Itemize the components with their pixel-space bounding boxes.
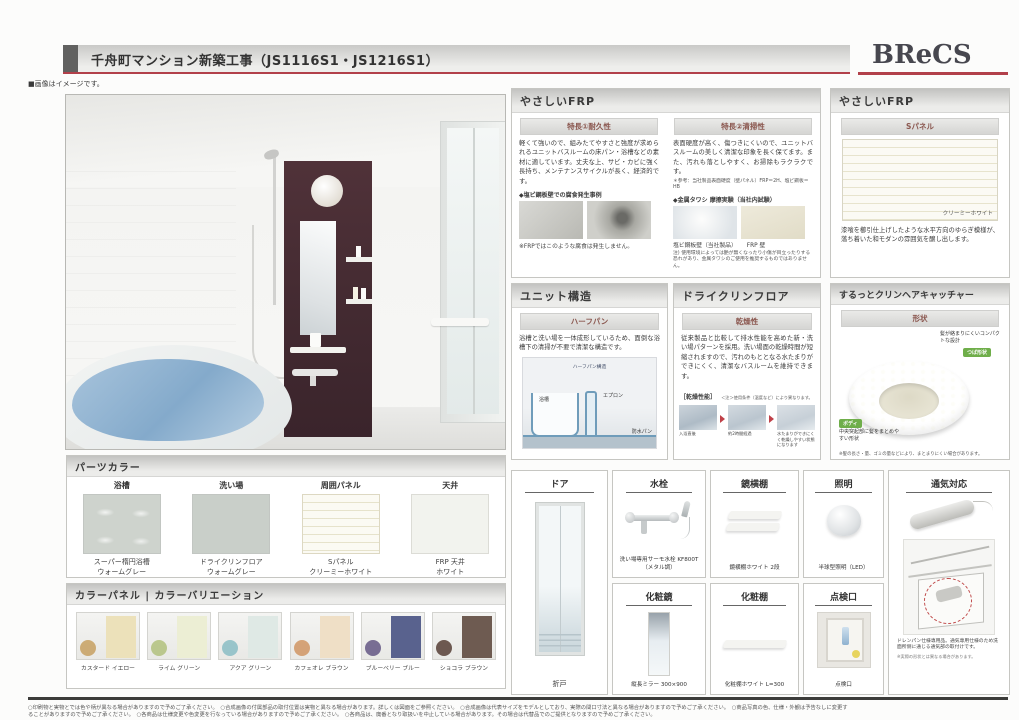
panel-unit-title-bar: ユニット構造 <box>512 284 667 308</box>
panel-unit: ユニット構造 ハーフパン 浴槽と洗い場を一体成形しているため、面倒な浴槽下の清掃… <box>511 283 668 460</box>
hair-subtitle: 形状 <box>841 310 1000 327</box>
color-variation-label: ブルーベリー ブルー <box>360 663 426 672</box>
halfpan-diagram-title: ハーフパン構造 <box>523 363 656 370</box>
s-panel-body: 漆喰を櫛引仕上げしたような水平方向のゆらぎ模様が、落ち着いた和モダンの雰囲気を醸… <box>831 224 1009 247</box>
parts-color-item: 洗い場 ドライクリンフロア ウォームグレー <box>183 480 279 577</box>
parts-color-section: パーツカラー 浴槽 スーパー楕円浴槽 ウォームグレー 洗い場 ドライクリンフロア… <box>66 455 506 578</box>
faucet-figure <box>613 493 705 545</box>
scrub-note: 注) 使用環境によっては艶が無くなったり小傷が目立ったりする恐れがあり、金属タワ… <box>666 250 820 271</box>
swatch-photo-blob <box>151 640 167 656</box>
parts-color-caption2: ホワイト <box>402 567 498 577</box>
panel-hair-catcher: するっとクリンヘアキャッチャー 形状 髪が絡まりにくいコンパクトな設計 つば形状… <box>830 283 1010 460</box>
swatch-color-panel <box>106 616 136 658</box>
hand-shower-hose <box>679 517 690 539</box>
diagram-red-dashed-circle <box>924 578 972 624</box>
dry-step-photo-2 <box>728 405 766 430</box>
parts-color-title-bar: パーツカラー <box>67 456 505 477</box>
frp-hardness-reference: ＊参考：当社製品表面硬度（壁パネル）FRP＝2H、塩ビ鋼板＝HB <box>666 177 820 192</box>
product-door-caption: 折戸 <box>512 680 607 689</box>
label-apron: エプロン <box>603 392 623 399</box>
parts-color-item: 天井 FRP 天井 ホワイト <box>402 480 498 577</box>
diagram-line-1 <box>911 546 990 564</box>
dry-step-photo-3 <box>777 405 815 430</box>
swatch-photo-blob <box>222 640 238 656</box>
faucet-spout <box>310 376 316 386</box>
panel-frp-title-bar: やさしいFRP <box>512 89 820 113</box>
panel-frp-s-title-bar: やさしいFRP <box>831 89 1009 113</box>
halfpan-diagram: ハーフパン構造 浴槽 エプロン 防水パン <box>522 357 657 449</box>
swatch-color-panel <box>462 616 492 658</box>
product-light-caption: 半球型照明（LED） <box>804 565 883 572</box>
product-mirror-shelf-title: 鏡横棚 <box>711 471 798 490</box>
shower-hose <box>252 225 288 379</box>
product-vanity-shelf-title: 化粧棚 <box>711 584 798 603</box>
image-disclaimer: ■画像はイメージです。 <box>28 79 104 89</box>
header-square <box>63 45 78 72</box>
frp-scrub-heading: ◆金属タワシ 摩擦実験（当社内試験） <box>666 192 820 206</box>
dry-step-caption-1: 入浴直後 <box>679 431 717 436</box>
hair-catcher-center <box>879 383 939 419</box>
product-faucet-title: 水栓 <box>613 471 705 490</box>
swatch-photo-blob <box>365 640 381 656</box>
page-title: 千舟町マンション新築工事（JS1116S1・JS1216S1） <box>91 50 439 69</box>
product-mirror-shelf-caption: 鏡横棚ホワイト 2段 <box>711 565 798 572</box>
accent-wall-panel <box>284 161 372 437</box>
tall-mirror <box>300 221 336 335</box>
color-variation-swatch <box>218 612 282 660</box>
frp-cleanability-column: 特長②清掃性 表面硬度が高く、傷つきにくいので、ユニットバスルームの美しく清潔な… <box>666 113 820 271</box>
dry-perf-label: ［乾燥性能］ <box>680 394 716 401</box>
product-vanity-shelf: 化粧棚 化粧棚ホワイト L=300 <box>710 583 799 695</box>
color-variation-item: ブルーベリー ブルー <box>360 612 426 672</box>
vent-pipe <box>908 498 976 531</box>
arrow-right-icon <box>769 415 774 423</box>
product-faucet: 水栓 洗い場専用サーモ水栓 KF800T（メタル調） <box>612 470 706 578</box>
unit-body: 浴槽と洗い場を一体成形しているため、面倒な浴槽下の清掃が不要で清潔な構造です。 <box>512 334 667 353</box>
title-underline <box>626 605 692 606</box>
parts-color-caption1: ドライクリンフロア <box>183 557 279 567</box>
color-variation-section: カラーパネル | カラーバリエーション カスタード イエロー ライム グリーン <box>66 583 506 689</box>
shelf-tier-1 <box>728 511 783 519</box>
dry-subtitle: 乾燥性 <box>682 313 812 330</box>
product-vent: 通気対応 ドレンパン仕様専用品。通気専用仕様のため洗面所側に通じる通気部の取付け… <box>888 470 1010 695</box>
hair-badge-bottom: ボディ <box>839 419 862 428</box>
faucet-knob-right <box>669 512 679 523</box>
hatch-figure <box>817 612 871 668</box>
door-figure <box>536 503 584 655</box>
vent-diagram <box>903 539 995 635</box>
product-hatch-caption: 点検口 <box>804 682 883 689</box>
hand-shower <box>681 501 691 518</box>
door-bottom-slats <box>539 630 581 648</box>
parts-color-caption2: ウォームグレー <box>183 567 279 577</box>
color-variation-item: カスタード イエロー <box>75 612 141 672</box>
corner-shelf-1 <box>346 257 372 262</box>
color-variation-swatch <box>147 612 211 660</box>
product-light-title: 照明 <box>804 471 883 490</box>
door-divider <box>473 128 475 414</box>
dry-performance-steps: 入浴直後 約2時間経過 水たまりができにくく乾燥しやすい状態になります <box>674 405 820 447</box>
product-vanity-mirror-title: 化粧鏡 <box>613 584 705 603</box>
product-vanity-mirror-caption: 縦長ミラー 300×900 <box>613 682 705 689</box>
brand-underline <box>858 72 1008 75</box>
bottle-1 <box>356 246 361 257</box>
brand-logo: BReCS <box>872 40 972 70</box>
color-variation-label: ショコラ ブラウン <box>431 663 497 672</box>
parts-color-swatch-bathtub <box>83 494 161 554</box>
scrub-caption-right: FRP 壁 <box>747 240 766 249</box>
title-underline <box>525 492 593 493</box>
s-panel-swatch-label: クリーミーホワイト <box>943 209 993 217</box>
color-variation-label: アクア グリーン <box>217 663 283 672</box>
dry-step-caption-3: 水たまりができにくく乾燥しやすい状態になります <box>777 431 815 447</box>
faucet-knob-left <box>625 512 635 523</box>
parts-color-swatch-floor <box>192 494 270 554</box>
parts-color-item: 浴槽 スーパー楕円浴槽 ウォームグレー <box>74 480 170 577</box>
bathroom-door <box>440 121 506 423</box>
footer-rule <box>28 697 1008 700</box>
panel-frp-s-title: やさしいFRP <box>839 95 914 108</box>
panel-hair-title-bar: するっとクリンヘアキャッチャー <box>831 284 1009 305</box>
hair-catcher-figure: 髪が絡まりにくいコンパクトな設計 つば形状 ボディ 中央突起部に髪をまとめやすい… <box>831 331 1009 449</box>
corrosion-photo-1 <box>519 201 583 239</box>
corrosion-photo-2 <box>587 201 651 239</box>
header-bar: 千舟町マンション新築工事（JS1116S1・JS1216S1） <box>63 45 850 72</box>
color-variation-swatch <box>290 612 354 660</box>
frp-durability-heading: 特長①耐久性 <box>520 118 658 135</box>
panel-frp-title: やさしいFRP <box>520 95 595 108</box>
bottle-3 <box>361 288 366 299</box>
parts-color-label: 洗い場 <box>183 480 279 491</box>
panel-dry-title-bar: ドライクリンフロア <box>674 284 820 308</box>
label-bathtub: 浴槽 <box>539 396 549 403</box>
bath-water <box>72 359 264 441</box>
frp-durability-column: 特長①耐久性 軽くて強いので、組みたてやすさと強度が求められるユニットバスルーム… <box>512 113 666 271</box>
product-door: ドア 折戸 <box>511 470 608 695</box>
scrub-photo-frp <box>741 206 805 239</box>
hair-label-bottom: 中央突起部に髪をまとめやすい形状 <box>839 429 903 442</box>
round-light <box>311 175 343 207</box>
parts-color-label: 天井 <box>402 480 498 491</box>
dry-step-2: 約2時間経過 <box>728 405 766 436</box>
color-variation-swatch <box>361 612 425 660</box>
scrub-photo-steel <box>673 206 737 239</box>
faucet-spout <box>641 521 647 534</box>
swatch-color-panel <box>248 616 278 658</box>
title-underline <box>723 605 786 606</box>
product-spec-sheet: 千舟町マンション新築工事（JS1116S1・JS1216S1） BReCS ■画… <box>0 0 1019 720</box>
color-variation-item: カフェオレ ブラウン <box>289 612 355 672</box>
product-door-title: ドア <box>512 471 607 490</box>
parts-color-label: 浴槽 <box>74 480 170 491</box>
hatch-yellow-dot <box>852 650 860 658</box>
parts-color-caption2: クリーミーホワイト <box>293 567 389 577</box>
product-vent-caption: ドレンパン仕様専用品。通気専用仕様のため洗面所側に通じる通気部の取付けです。 <box>889 635 1009 652</box>
color-variation-swatch <box>432 612 496 660</box>
color-variation-item: ショコラ ブラウン <box>431 612 497 672</box>
color-variation-label: カスタード イエロー <box>75 663 141 672</box>
panel-dry: ドライクリンフロア 乾燥性 従来製品と比較して排水性能を高めた新・洗い場パターン… <box>673 283 821 460</box>
vent-cord <box>973 501 993 512</box>
unit-subtitle: ハーフパン <box>520 313 658 330</box>
product-mirror-shelf: 鏡横棚 鏡横棚ホワイト 2段 <box>710 470 799 578</box>
color-variation-title-bar: カラーパネル | カラーバリエーション <box>67 584 505 605</box>
product-hatch-title: 点検口 <box>804 584 883 603</box>
cup <box>310 333 321 347</box>
counter-shelf <box>290 347 346 353</box>
parts-color-label: 周囲パネル <box>293 480 389 491</box>
product-vent-note: ※実際の形状とは異なる場合があります。 <box>889 652 1009 660</box>
dry-step-caption-2: 約2時間経過 <box>728 431 766 436</box>
hair-label-top: 髪が絡まりにくいコンパクトな設計 <box>940 331 1004 344</box>
parts-color-caption1: Sパネル <box>293 557 389 567</box>
shelf-tier-2 <box>726 523 781 531</box>
light-figure <box>827 505 861 536</box>
color-variation-swatch <box>76 612 140 660</box>
frp-corrosion-caption: ※FRPではこのような腐食は発生しません。 <box>512 239 666 252</box>
color-variation-item: アクア グリーン <box>217 612 283 672</box>
vanity-shelf-figure <box>722 640 787 648</box>
panel-frp: やさしいFRP 特長①耐久性 軽くて強いので、組みたてやすさと強度が求められるユ… <box>511 88 821 278</box>
product-hatch: 点検口 点検口 <box>803 583 884 695</box>
dry-body: 従来製品と比較して排水性能を高めた新・洗い場パターンを採用。洗い場面の乾燥時間が… <box>674 334 820 381</box>
mirror-shelf-figure <box>711 493 798 545</box>
product-vanity-mirror: 化粧鏡 縦長ミラー 300×900 <box>612 583 706 695</box>
frp-cleanability-heading: 特長②清掃性 <box>674 118 812 135</box>
product-light: 照明 半球型照明（LED） <box>803 470 884 578</box>
bathroom-photo <box>65 94 506 450</box>
corner-shelf-2 <box>346 299 372 304</box>
color-variation-title: カラーパネル | カラーバリエーション <box>75 591 264 602</box>
panel-unit-title: ユニット構造 <box>520 290 592 303</box>
frp-cleanability-body: 表面硬度が高く、傷つきにくいので、ユニットバスルームの美しく清潔な印象を長く保て… <box>666 139 820 177</box>
hair-badge-top: つば形状 <box>963 348 991 357</box>
title-underline <box>815 492 872 493</box>
dry-perf-note: ＜注＞使用条件（温度など）により異なります。 <box>721 395 813 400</box>
dry-step-1: 入浴直後 <box>679 405 717 436</box>
parts-color-swatch-panel <box>302 494 380 554</box>
apron-shape <box>585 391 597 437</box>
towel-bar <box>431 318 489 326</box>
swatch-photo-blob <box>436 640 452 656</box>
parts-color-item: 周囲パネル Sパネル クリーミーホワイト <box>293 480 389 577</box>
vent-item-figure <box>889 493 1009 537</box>
color-variation-label: カフェオレ ブラウン <box>289 663 355 672</box>
arrow-right-icon <box>720 415 725 423</box>
vanity-mirror-figure <box>648 612 670 676</box>
color-variation-label: ライム グリーン <box>146 663 212 672</box>
footer-disclaimer-line2: ることがありますので予めご了承ください。 ○各商品は仕様変更や色変更を行なってい… <box>28 710 1008 718</box>
panel-frp-s: やさしいFRP Sパネル クリーミーホワイト 漆喰を櫛引仕上げしたような水平方向… <box>830 88 1010 278</box>
parts-color-title: パーツカラー <box>75 463 141 474</box>
swatch-color-panel <box>391 616 421 658</box>
swatch-color-panel <box>177 616 207 658</box>
parts-color-swatch-ceiling <box>411 494 489 554</box>
dry-step-photo-1 <box>679 405 717 430</box>
product-vent-title: 通気対応 <box>889 471 1009 490</box>
panel-dry-title: ドライクリンフロア <box>682 290 789 303</box>
swatch-photo-blob <box>80 640 96 656</box>
bottle-2 <box>353 287 358 299</box>
hatch-bottle <box>842 627 849 645</box>
faucet-bar <box>292 369 338 376</box>
swatch-color-panel <box>320 616 350 658</box>
parts-color-caption1: スーパー楕円浴槽 <box>74 557 170 567</box>
scrub-caption-left: 塩ビ鋼板壁（当社製品） <box>673 240 737 249</box>
product-faucet-caption: 洗い場専用サーモ水栓 KF800T（メタル調） <box>613 557 705 572</box>
product-vanity-shelf-caption: 化粧棚ホワイト L=300 <box>711 682 798 689</box>
hair-footnote: ※髪の長さ・量、ゴミの量などにより、まとまりにくい場合があります。 <box>831 449 1009 457</box>
s-panel-subtitle: Sパネル <box>841 118 1000 135</box>
s-panel-swatch: クリーミーホワイト <box>842 139 998 221</box>
color-variation-item: ライム グリーン <box>146 612 212 672</box>
title-underline <box>815 605 872 606</box>
parts-color-caption1: FRP 天井 <box>402 557 498 567</box>
panel-hair-title: するっとクリンヘアキャッチャー <box>839 291 974 301</box>
header-underline <box>63 72 850 74</box>
frp-corrosion-heading: ◆塩ビ鋼板壁での腐食発生事例 <box>512 186 666 201</box>
frp-durability-body: 軽くて強いので、組みたてやすさと強度が求められるユニットバスルームの床パン・浴槽… <box>512 139 666 186</box>
parts-color-caption2: ウォームグレー <box>74 567 170 577</box>
label-waterpan: 防水パン <box>632 428 652 435</box>
swatch-photo-blob <box>294 640 310 656</box>
dry-step-3: 水たまりができにくく乾燥しやすい状態になります <box>777 405 815 447</box>
